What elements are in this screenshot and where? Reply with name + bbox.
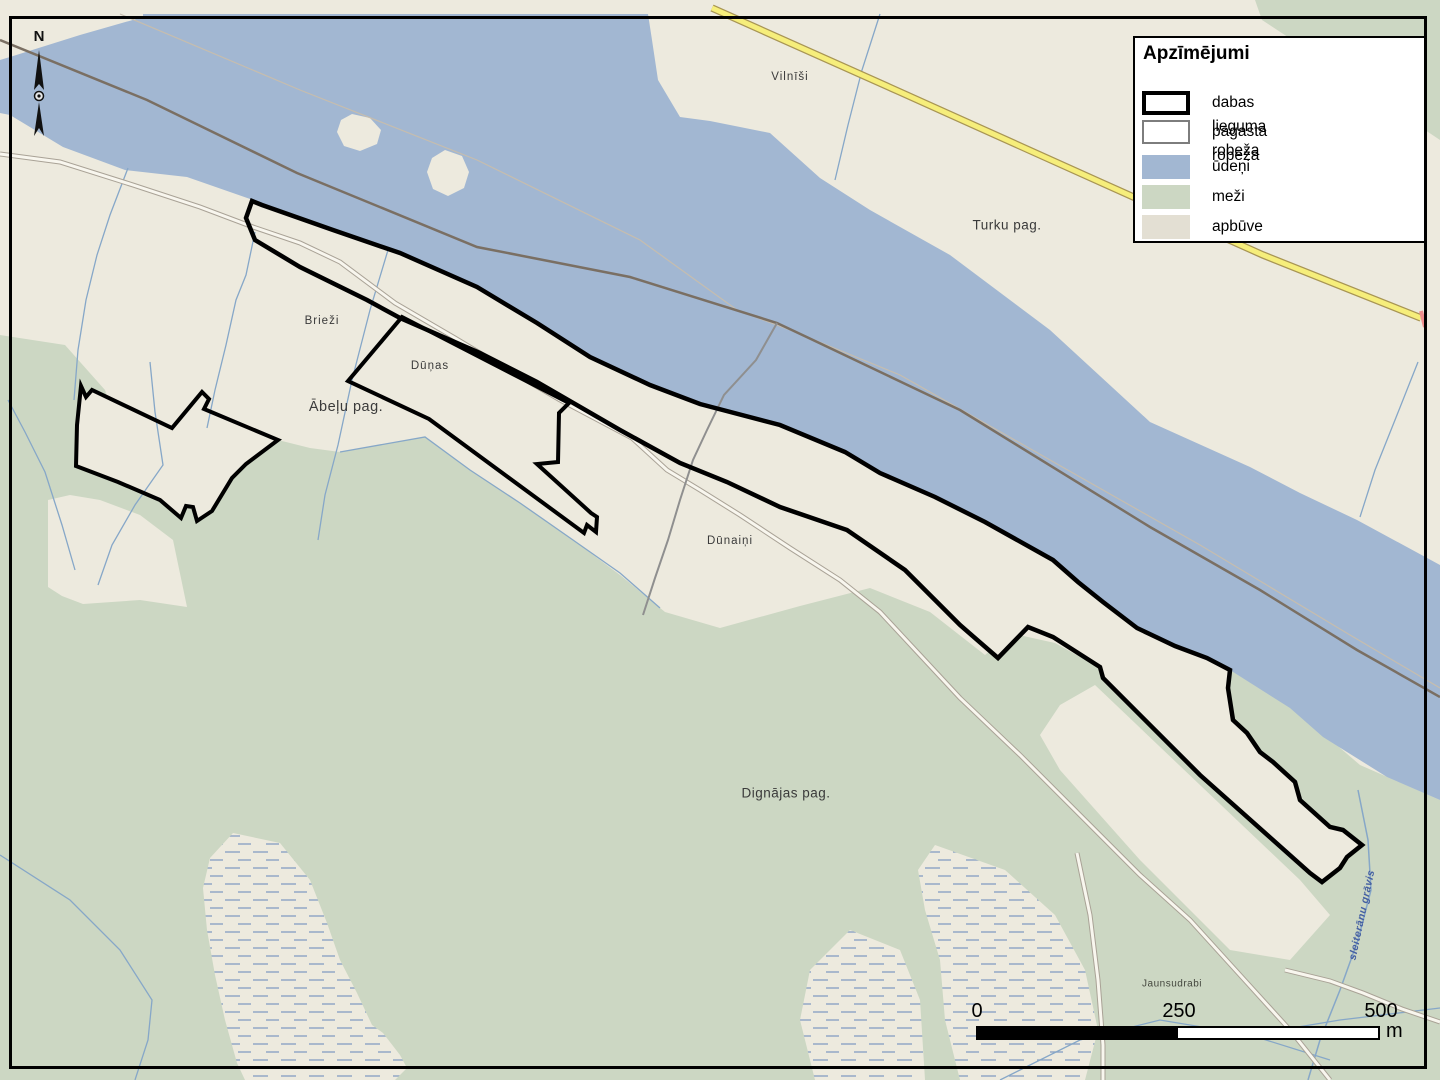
legend-label: apbūve (1212, 215, 1263, 239)
legend-label: ūdeņi (1212, 155, 1250, 179)
scalebar-tick-250: 250 (1162, 1000, 1195, 1023)
scalebar-bar (976, 1026, 1380, 1040)
stream-tip (207, 232, 255, 428)
road-yellow-end-mark (1421, 311, 1425, 327)
north-label: N (34, 28, 45, 45)
scalebar-bar-filled (978, 1028, 1178, 1038)
legend-swatch-water (1142, 155, 1190, 179)
scalebar-unit: m (1386, 1020, 1403, 1043)
stream-northeast (1360, 362, 1418, 517)
north-arrow: N (22, 28, 56, 146)
legend: Apzīmējumi dabas lieguma robeža pagasta … (1133, 36, 1426, 243)
legend-swatch-reserve-boundary (1142, 91, 1190, 115)
legend-label: meži (1212, 185, 1245, 209)
legend-swatch-builtup (1142, 215, 1190, 239)
stream-north-of-river (835, 14, 880, 180)
map-canvas: VilnīšiTurku pag.BriežiDūņasĀbeļu pag.Dū… (0, 0, 1440, 1080)
north-arrow-icon (22, 28, 56, 146)
legend-swatch-forest (1142, 185, 1190, 209)
legend-swatch-parish-boundary (1142, 120, 1190, 144)
scalebar-tick-0: 0 (971, 1000, 982, 1023)
legend-title: Apzīmējumi (1143, 43, 1250, 65)
